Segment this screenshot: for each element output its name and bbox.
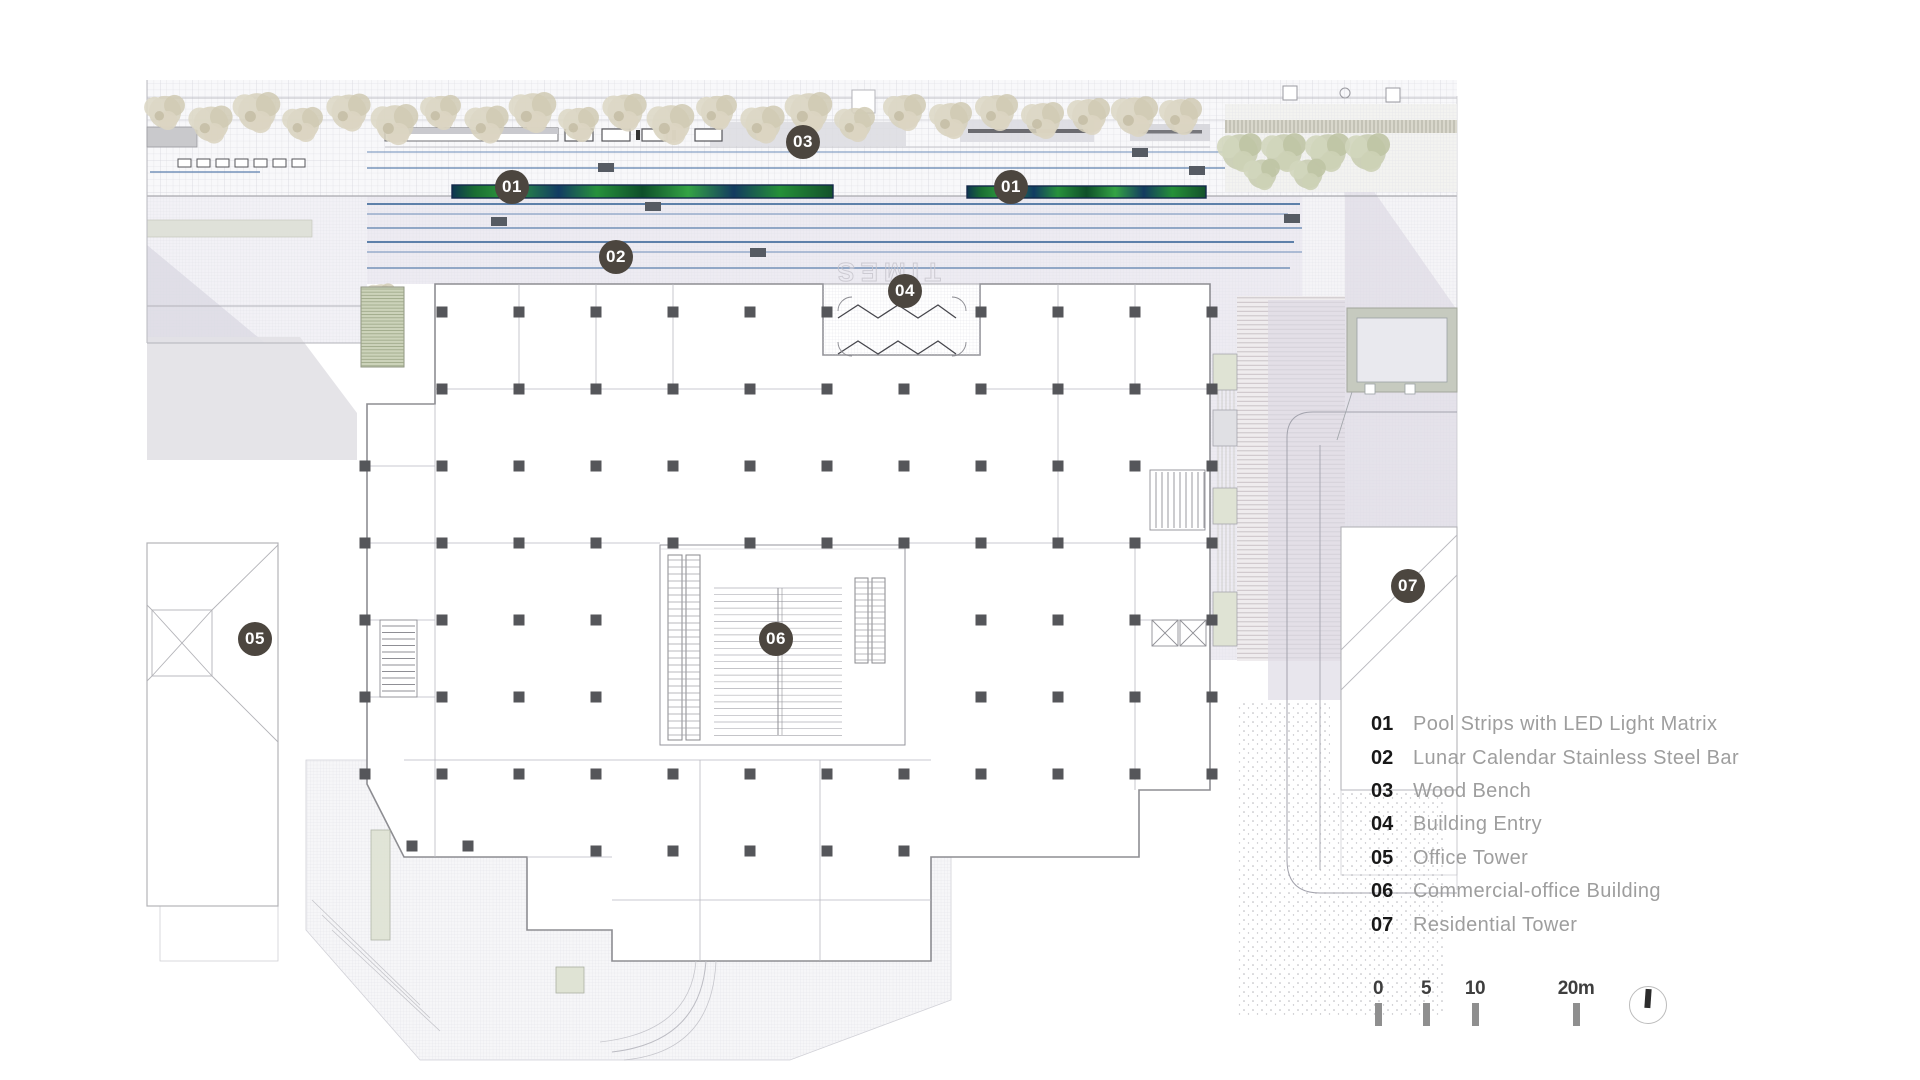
scale-tick-label: 20m xyxy=(1556,978,1596,1000)
scale-tick-label: 10 xyxy=(1455,978,1495,1000)
legend-item-number: 07 xyxy=(1371,914,1413,937)
legend-item: 06Commercial-office Building xyxy=(1371,875,1739,908)
legend-item: 02Lunar Calendar Stainless Steel Bar xyxy=(1371,741,1739,774)
legend-item: 04Building Entry xyxy=(1371,808,1739,841)
plan-marker-06: 06 xyxy=(759,622,793,656)
north-arrow-icon xyxy=(1629,986,1667,1024)
legend-item-number: 02 xyxy=(1371,747,1413,770)
legend-item: 03Wood Bench xyxy=(1371,775,1739,808)
plan-marker-07: 07 xyxy=(1391,569,1425,603)
legend: 01Pool Strips with LED Light Matrix02Lun… xyxy=(1371,708,1739,942)
corner-planter xyxy=(361,287,404,367)
plan-marker-04: 04 xyxy=(888,274,922,308)
scale-tick-label: 5 xyxy=(1406,978,1446,1000)
legend-item-number: 04 xyxy=(1371,813,1413,836)
scale-tick-bar xyxy=(1472,1003,1479,1026)
plan-marker-03: 03 xyxy=(786,125,820,159)
scale-tick-bar xyxy=(1573,1003,1580,1026)
office-tower xyxy=(147,543,278,961)
legend-item-number: 01 xyxy=(1371,713,1413,736)
site-plan-page: TIMES xyxy=(0,0,1920,1080)
scale-tick-bar xyxy=(1375,1003,1382,1026)
etched-times-text: TIMES xyxy=(831,257,940,287)
legend-item-label: Residential Tower xyxy=(1413,914,1577,937)
legend-item: 01Pool Strips with LED Light Matrix xyxy=(1371,708,1739,741)
legend-item-label: Wood Bench xyxy=(1413,780,1531,803)
legend-item-number: 03 xyxy=(1371,780,1413,803)
plan-marker-02: 02 xyxy=(599,240,633,274)
plan-marker-01: 01 xyxy=(994,170,1028,204)
plan-marker-01: 01 xyxy=(495,170,529,204)
legend-item-label: Lunar Calendar Stainless Steel Bar xyxy=(1413,747,1739,770)
scale-tick-label: 0 xyxy=(1358,978,1398,1000)
legend-item: 05Office Tower xyxy=(1371,842,1739,875)
legend-item-label: Commercial-office Building xyxy=(1413,880,1661,903)
legend-item-label: Building Entry xyxy=(1413,813,1542,836)
edge-planters xyxy=(1213,354,1237,646)
scale-tick: 10 xyxy=(1455,978,1495,1026)
scale-tick: 5 xyxy=(1406,978,1446,1026)
legend-item-label: Office Tower xyxy=(1413,847,1528,870)
pool-strips xyxy=(452,185,1206,198)
legend-item-number: 05 xyxy=(1371,847,1413,870)
scale-tick: 20m xyxy=(1556,978,1596,1026)
commercial-building: TIMES xyxy=(360,257,1238,961)
legend-item: 07Residential Tower xyxy=(1371,908,1739,941)
legend-item-label: Pool Strips with LED Light Matrix xyxy=(1413,713,1717,736)
legend-item-number: 06 xyxy=(1371,880,1413,903)
scale-tick: 0 xyxy=(1358,978,1398,1026)
svg-text:TIMES: TIMES xyxy=(831,257,940,287)
scale-tick-bar xyxy=(1423,1003,1430,1026)
plan-marker-05: 05 xyxy=(238,622,272,656)
